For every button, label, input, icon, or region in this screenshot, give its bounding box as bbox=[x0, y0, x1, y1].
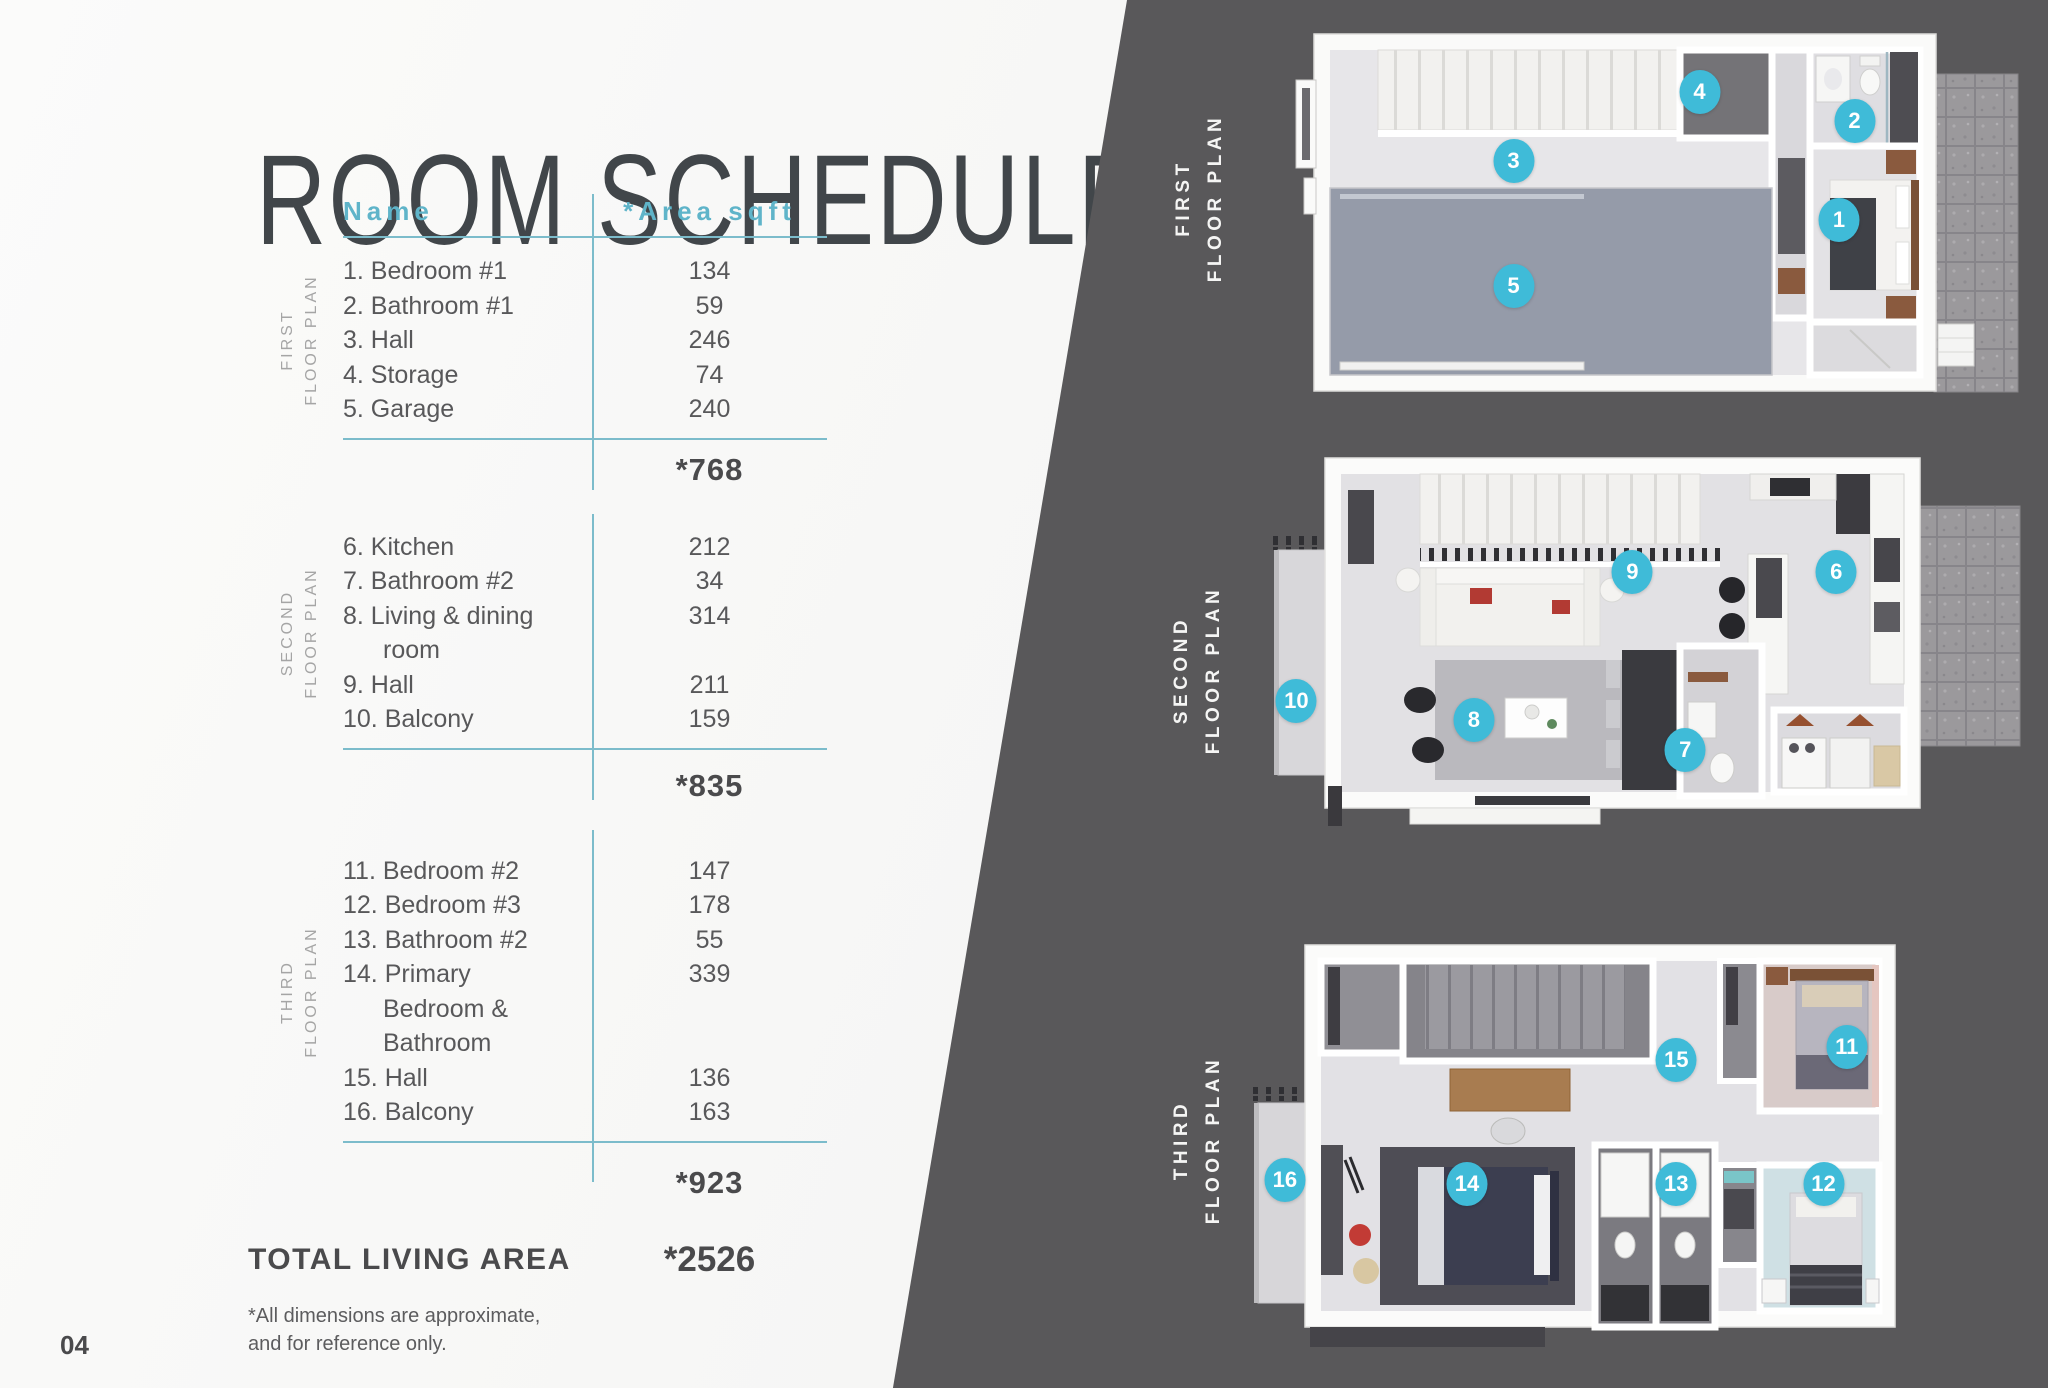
second-floor-markers: 678910 bbox=[1270, 450, 2025, 830]
room-marker-8: 8 bbox=[1453, 698, 1494, 742]
room-marker-10: 10 bbox=[1276, 679, 1317, 723]
schedule-row: 2. Bathroom #159 bbox=[343, 289, 827, 324]
room-area-value: 74 bbox=[592, 358, 827, 393]
total-living-area-label: TOTAL LIVING AREA bbox=[248, 1243, 592, 1277]
schedule-row: 8. Living & diningroom314 bbox=[343, 599, 827, 668]
room-area-value: 159 bbox=[592, 702, 827, 737]
room-name: 7. Bathroom #2 bbox=[343, 564, 592, 599]
second-floor-plan-label: SECOND FLOOR PLAN bbox=[1166, 586, 1230, 755]
room-area-value: 136 bbox=[592, 1061, 827, 1096]
room-marker-13: 13 bbox=[1656, 1162, 1697, 1206]
room-area-value: 211 bbox=[592, 668, 827, 703]
section-subtotal-value: *835 bbox=[676, 768, 744, 803]
section-subtotal-value: *923 bbox=[676, 1165, 744, 1200]
room-area-value: 212 bbox=[592, 530, 827, 565]
room-name: 3. Hall bbox=[343, 323, 592, 358]
column-header-area: *Area sqft bbox=[592, 194, 827, 228]
schedule-row: 3. Hall246 bbox=[343, 323, 827, 358]
table-header-row: Name *Area sqft bbox=[343, 194, 827, 238]
section-floor-label: THIRD FLOOR PLAN bbox=[276, 926, 324, 1057]
schedule-row: 6. Kitchen212 bbox=[343, 530, 827, 565]
room-marker-5: 5 bbox=[1493, 264, 1534, 308]
room-area-value: 147 bbox=[592, 854, 827, 889]
table-section: FIRST FLOOR PLAN1. Bedroom #11342. Bathr… bbox=[343, 254, 827, 486]
table-section: SECOND FLOOR PLAN6. Kitchen2127. Bathroo… bbox=[343, 530, 827, 802]
section-subtotal: *768 bbox=[592, 454, 827, 486]
room-name: 8. Living & diningroom bbox=[343, 599, 592, 668]
column-divider-line bbox=[592, 514, 594, 800]
section-rows: FIRST FLOOR PLAN1. Bedroom #11342. Bathr… bbox=[343, 254, 827, 427]
room-name: 14. PrimaryBedroom &Bathroom bbox=[343, 957, 592, 1061]
section-subtotal: *835 bbox=[592, 770, 827, 802]
room-name: 13. Bathroom #2 bbox=[343, 923, 592, 958]
room-area-value: 163 bbox=[592, 1095, 827, 1130]
room-area-value: 134 bbox=[592, 254, 827, 289]
third-floor-plan-label: THIRD FLOOR PLAN bbox=[1166, 1056, 1230, 1225]
first-floor-plan-label: FIRST FLOOR PLAN bbox=[1168, 114, 1232, 283]
room-marker-4: 4 bbox=[1679, 70, 1720, 114]
section-rows: SECOND FLOOR PLAN6. Kitchen2127. Bathroo… bbox=[343, 530, 827, 737]
first-floor-plan-image: 12345 bbox=[1250, 30, 2025, 395]
section-subtotal-value: *768 bbox=[676, 452, 744, 487]
total-living-area-value: *2526 bbox=[592, 1240, 827, 1280]
room-name: 15. Hall bbox=[343, 1061, 592, 1096]
room-area-value: 240 bbox=[592, 392, 827, 427]
room-name: 1. Bedroom #1 bbox=[343, 254, 592, 289]
schedule-row: 13. Bathroom #255 bbox=[343, 923, 827, 958]
section-floor-label: FIRST FLOOR PLAN bbox=[276, 275, 324, 406]
section-floor-label: SECOND FLOOR PLAN bbox=[276, 567, 324, 698]
room-schedule-table: Name *Area sqft FIRST FLOOR PLAN1. Bedro… bbox=[343, 194, 827, 1199]
room-marker-3: 3 bbox=[1493, 139, 1534, 183]
room-name: 2. Bathroom #1 bbox=[343, 289, 592, 324]
room-marker-2: 2 bbox=[1834, 99, 1875, 143]
column-divider-line bbox=[592, 830, 594, 1182]
room-area-value: 59 bbox=[592, 289, 827, 324]
schedule-row: 5. Garage240 bbox=[343, 392, 827, 427]
table-section: THIRD FLOOR PLAN11. Bedroom #214712. Bed… bbox=[343, 854, 827, 1199]
total-living-area-row: TOTAL LIVING AREA *2526 bbox=[248, 1240, 827, 1280]
schedule-row: 10. Balcony159 bbox=[343, 702, 827, 737]
room-marker-15: 15 bbox=[1656, 1038, 1697, 1082]
section-rows: THIRD FLOOR PLAN11. Bedroom #214712. Bed… bbox=[343, 854, 827, 1130]
room-marker-7: 7 bbox=[1665, 728, 1706, 772]
room-name: 11. Bedroom #2 bbox=[343, 854, 592, 889]
page-number: 04 bbox=[60, 1330, 89, 1361]
schedule-row: 7. Bathroom #234 bbox=[343, 564, 827, 599]
schedule-row: 1. Bedroom #1134 bbox=[343, 254, 827, 289]
schedule-row: 4. Storage74 bbox=[343, 358, 827, 393]
third-floor-plan-image: 111213141516 bbox=[1250, 935, 2025, 1350]
room-marker-9: 9 bbox=[1612, 550, 1653, 594]
schedule-row: 11. Bedroom #2147 bbox=[343, 854, 827, 889]
room-area-value: 314 bbox=[592, 599, 827, 634]
room-schedule-page: ROOM SCHEDULE Name *Area sqft FIRST FLOO… bbox=[0, 0, 2048, 1388]
room-marker-6: 6 bbox=[1816, 550, 1857, 594]
room-marker-12: 12 bbox=[1803, 1162, 1844, 1206]
dimensions-footnote: *All dimensions are approximate, and for… bbox=[248, 1302, 540, 1358]
room-area-value: 55 bbox=[592, 923, 827, 958]
first-floor-markers: 12345 bbox=[1250, 30, 2025, 395]
schedule-row: 9. Hall211 bbox=[343, 668, 827, 703]
room-marker-11: 11 bbox=[1826, 1025, 1867, 1069]
section-divider-line bbox=[343, 438, 827, 440]
section-subtotal: *923 bbox=[592, 1167, 827, 1199]
column-header-name: Name bbox=[343, 194, 592, 228]
schedule-row: 12. Bedroom #3178 bbox=[343, 888, 827, 923]
room-name: 5. Garage bbox=[343, 392, 592, 427]
schedule-row: 14. PrimaryBedroom &Bathroom339 bbox=[343, 957, 827, 1061]
room-marker-1: 1 bbox=[1819, 198, 1860, 242]
schedule-row: 16. Balcony163 bbox=[343, 1095, 827, 1130]
room-name: 9. Hall bbox=[343, 668, 592, 703]
room-name: 4. Storage bbox=[343, 358, 592, 393]
room-area-value: 178 bbox=[592, 888, 827, 923]
room-area-value: 339 bbox=[592, 957, 827, 992]
room-name: 6. Kitchen bbox=[343, 530, 592, 565]
schedule-row: 15. Hall136 bbox=[343, 1061, 827, 1096]
room-marker-14: 14 bbox=[1447, 1162, 1488, 1206]
room-area-value: 34 bbox=[592, 564, 827, 599]
room-marker-16: 16 bbox=[1264, 1158, 1305, 1202]
table-sections: FIRST FLOOR PLAN1. Bedroom #11342. Bathr… bbox=[343, 254, 827, 1199]
column-divider-line bbox=[592, 194, 594, 490]
room-name: 10. Balcony bbox=[343, 702, 592, 737]
third-floor-markers: 111213141516 bbox=[1250, 935, 2025, 1350]
second-floor-plan-image: 678910 bbox=[1270, 450, 2025, 830]
room-name: 12. Bedroom #3 bbox=[343, 888, 592, 923]
section-divider-line bbox=[343, 748, 827, 750]
section-divider-line bbox=[343, 1141, 827, 1143]
room-name: 16. Balcony bbox=[343, 1095, 592, 1130]
room-area-value: 246 bbox=[592, 323, 827, 358]
